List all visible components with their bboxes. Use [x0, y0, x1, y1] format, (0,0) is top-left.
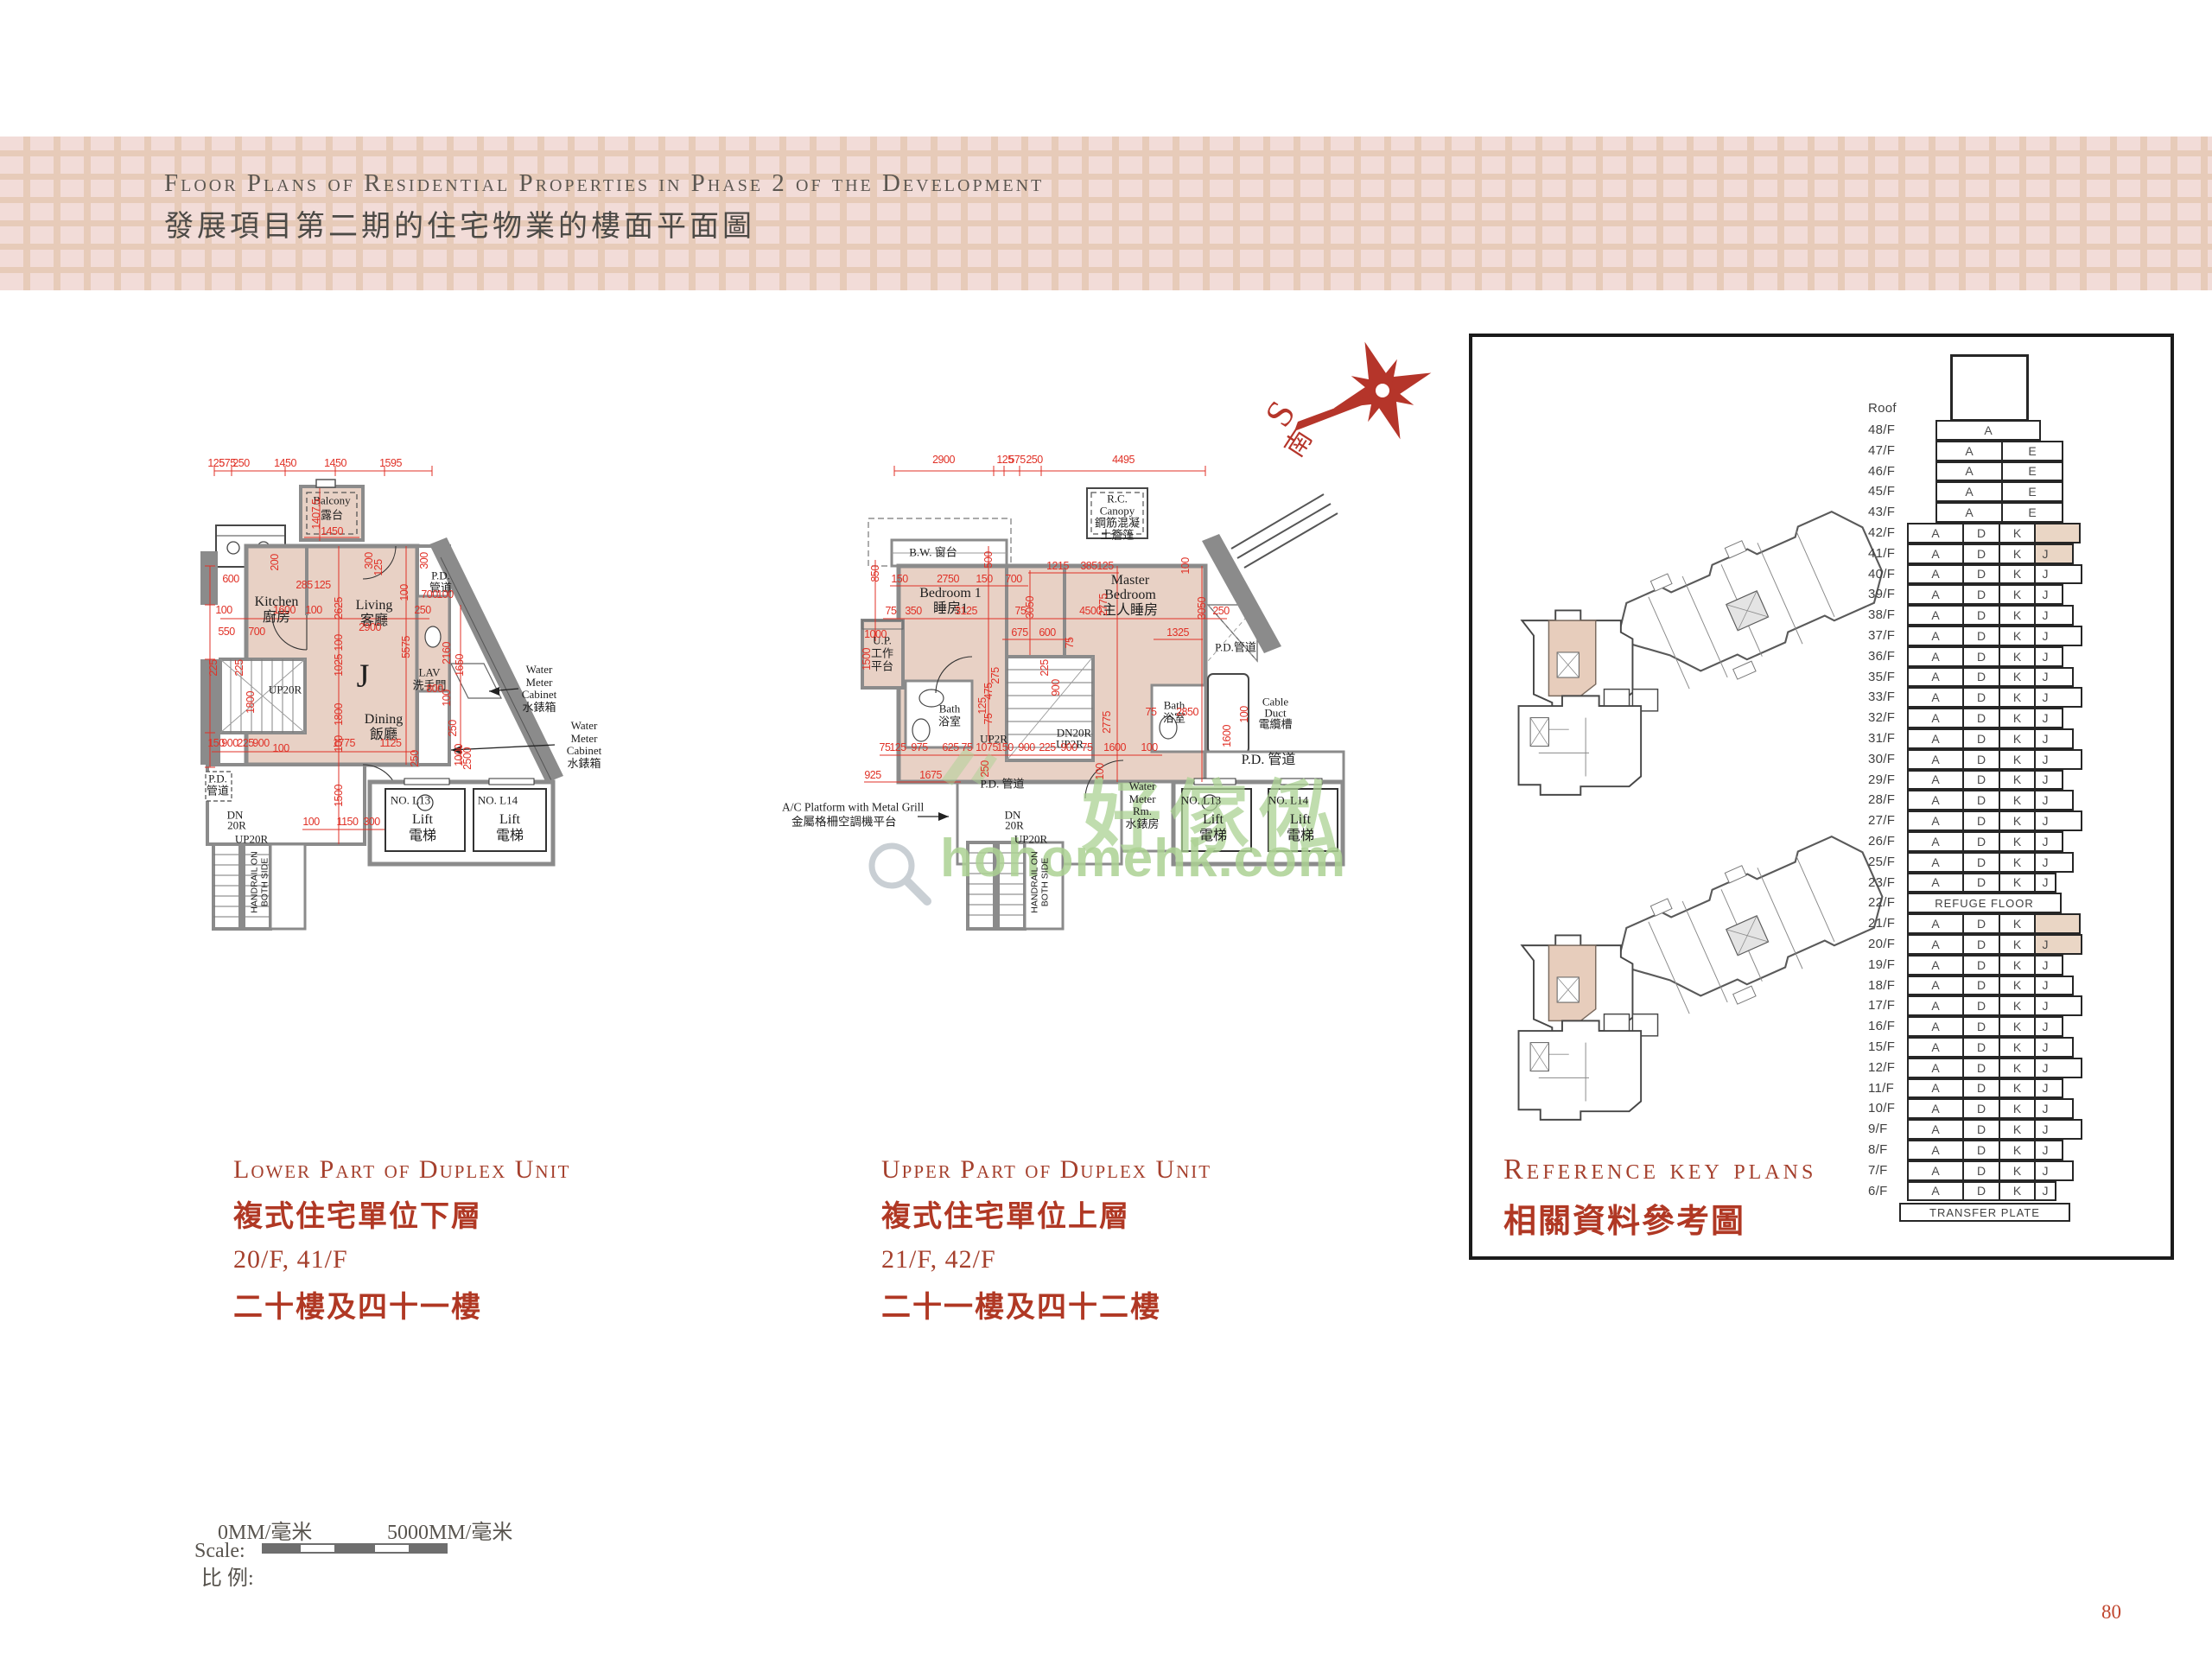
- floor-label: 40/F: [1868, 567, 1895, 582]
- floor-label: 12/F: [1868, 1060, 1895, 1075]
- dimension-label: 75: [962, 741, 973, 753]
- floor-label: 36/F: [1868, 649, 1895, 664]
- unit-cell: D: [1962, 543, 2000, 564]
- step-block: [2053, 667, 2074, 688]
- step-block: [2053, 626, 2082, 646]
- room-label: P.D. 管道: [981, 779, 1025, 791]
- dimension-label: 125: [976, 697, 988, 714]
- unit-cell: K: [1999, 873, 2036, 893]
- unit-cell: A: [1907, 1119, 1964, 1140]
- dimension-label: 1775: [333, 737, 355, 749]
- scale-segment: [373, 1543, 410, 1554]
- room-label: UP20R: [269, 684, 302, 697]
- unit-cell: A: [1907, 523, 1964, 543]
- room-label: 電梯: [1199, 829, 1227, 844]
- unit-cell: K: [1999, 1140, 2036, 1160]
- room-label: UP20R: [1014, 834, 1047, 847]
- dimension-label: 100: [1094, 763, 1106, 779]
- step-block: [2053, 584, 2063, 605]
- room-label: P.D. 管道: [1242, 753, 1296, 768]
- unit-cell: A: [1907, 646, 1964, 667]
- floor-label: 30/F: [1868, 752, 1895, 766]
- step-block: [2053, 995, 2082, 1016]
- dimension-label: 250: [979, 760, 991, 777]
- watermark-text: hohomehk.com: [940, 828, 1346, 889]
- dimension-label: 3050: [1024, 596, 1036, 619]
- unit-cell: D: [1962, 523, 2000, 543]
- floor-label: 27/F: [1868, 813, 1895, 828]
- floor-label: 16/F: [1868, 1019, 1895, 1033]
- step-block: [2053, 770, 2063, 791]
- dimension-label: 1325: [1166, 626, 1189, 639]
- floor-label: 10/F: [1868, 1101, 1895, 1116]
- dimension-label: 125: [1096, 560, 1113, 572]
- unit-cell: J: [2034, 873, 2056, 893]
- unit-cell: A: [1907, 1140, 1964, 1160]
- unit-cell: D: [1962, 1016, 2000, 1037]
- unit-cell: A: [1907, 831, 1964, 852]
- dimension-label: 75: [1082, 741, 1093, 753]
- unit-cell: D: [1962, 708, 2000, 728]
- dimension-label: 675: [1011, 626, 1027, 639]
- room-label: 電梯: [496, 829, 524, 844]
- dimension-label: 225: [207, 659, 219, 676]
- lower-plan-caption: Lower Part of Duplex Unit 複式住宅單位下層 20/F,…: [233, 1155, 769, 1325]
- room-label: Lift: [412, 812, 433, 828]
- unit-cell: E: [2001, 502, 2063, 523]
- step-block: [2053, 543, 2074, 564]
- dimension-label: 500: [982, 551, 995, 568]
- caption-en: Reference key plans: [1503, 1154, 1866, 1186]
- dimension-label: 900: [1050, 679, 1062, 696]
- unit-cell: A: [1907, 728, 1964, 749]
- annotation-label: HANDRAIL ON BOTH SIDE: [250, 851, 270, 912]
- unit-cell: A: [1907, 934, 1964, 955]
- dimension-label: 2775: [1101, 711, 1113, 734]
- floor-label: 11/F: [1868, 1081, 1894, 1096]
- dimension-label: 1595: [379, 457, 402, 469]
- dimension-label: 100: [1141, 741, 1157, 753]
- unit-cell: A: [1907, 1058, 1964, 1078]
- step-block: [2053, 1058, 2082, 1078]
- dimension-label: 75: [886, 605, 897, 617]
- floor-label: 21/F: [1868, 916, 1895, 931]
- dimension-label: 100: [1179, 557, 1192, 574]
- room-label: UP20R: [235, 834, 268, 847]
- step-block: [2053, 810, 2082, 831]
- dimension-label: 575: [1008, 454, 1025, 466]
- dimension-label: 900: [252, 737, 269, 749]
- step-block: [2053, 790, 2074, 810]
- floor-label: 28/F: [1868, 792, 1895, 807]
- unit-cell: K: [1999, 728, 2036, 749]
- unit-cell: K: [1999, 1160, 2036, 1181]
- room-label: 土簷篷: [1100, 530, 1134, 543]
- caption-floors-zh: 二十樓及四十一樓: [233, 1283, 769, 1325]
- unit-cell: D: [1962, 1181, 2000, 1202]
- dimension-label: 900: [1060, 741, 1077, 753]
- unit-cell: A: [1907, 584, 1964, 605]
- dimension-label: 100: [215, 604, 232, 616]
- dimension-label: 1600: [273, 604, 296, 616]
- step-block: [2053, 1119, 2082, 1140]
- unit-cell: D: [1962, 687, 2000, 708]
- dimension-label: 100: [333, 634, 345, 651]
- unit-cell: D: [1962, 995, 2000, 1016]
- dimension-label: 150: [891, 573, 907, 585]
- unit-cell: K: [1999, 1098, 2036, 1119]
- unit-cell: K: [1999, 626, 2036, 646]
- dimension-label: 1075: [976, 741, 998, 753]
- step-block: [2053, 831, 2063, 852]
- unit-cell: D: [1962, 1098, 2000, 1119]
- unit-cell: D: [1962, 873, 2000, 893]
- unit-cell: D: [1962, 564, 2000, 585]
- unit-cell: K: [1999, 667, 2036, 688]
- page-number: 80: [2101, 1601, 2121, 1624]
- scale-segment: [262, 1543, 299, 1554]
- room-label: 平台: [871, 661, 893, 674]
- dimension-label: 550: [218, 626, 234, 638]
- unit-cell: K: [1999, 810, 2036, 831]
- dimension-label: 925: [864, 769, 880, 781]
- dimension-label: 125: [314, 579, 330, 591]
- floor-label: 26/F: [1868, 834, 1895, 849]
- floor-label: 31/F: [1868, 731, 1895, 746]
- dimension-label: 850: [869, 565, 881, 582]
- dimension-label: 1025: [333, 654, 345, 677]
- floor-label: 43/F: [1868, 505, 1895, 519]
- caption-zh: 相關資料參考圖: [1503, 1194, 1866, 1242]
- unit-cell: D: [1962, 1160, 2000, 1181]
- floor-label: 35/F: [1868, 670, 1895, 684]
- room-label: Dining: [365, 712, 403, 728]
- room-label: B.W. 窗台: [909, 547, 957, 560]
- room-label: Bedroom 1: [919, 586, 982, 601]
- caption-en: Upper Part of Duplex Unit: [881, 1155, 1417, 1185]
- room-label: Lift: [1290, 812, 1311, 828]
- floor-label: 17/F: [1868, 998, 1895, 1013]
- unit-cell: A: [1907, 976, 1964, 996]
- unit-cell: K: [1999, 708, 2036, 728]
- unit-cell: D: [1962, 605, 2000, 626]
- floor-label: 46/F: [1868, 464, 1895, 479]
- floor-label: 7/F: [1868, 1163, 1888, 1178]
- dimension-label: 300: [363, 816, 379, 828]
- annotation-label: Water Meter Cabinet 水錶箱: [567, 720, 601, 770]
- annotation-label: A/C Platform with Metal Grill: [782, 800, 924, 813]
- unit-cell: K: [1999, 934, 2036, 955]
- unit-cell: D: [1962, 1140, 2000, 1160]
- unit-cell: A: [1935, 461, 2003, 482]
- dimension-label: 75: [1064, 638, 1076, 649]
- dimension-label: 900: [221, 737, 238, 749]
- dimension-label: 2850: [1176, 706, 1198, 718]
- step-block: [2053, 749, 2082, 770]
- dimension-label: 1675: [919, 769, 942, 781]
- room-label: 20R: [1005, 820, 1024, 833]
- unit-cell: A: [1907, 770, 1964, 791]
- unit-cell: K: [1999, 1119, 2036, 1140]
- dimension-label: 100: [302, 816, 319, 828]
- floor-label: 8/F: [1868, 1142, 1888, 1157]
- unit-cell: K: [1999, 687, 2036, 708]
- dimension-label: 125: [372, 559, 385, 575]
- dimension-label: 3125: [955, 605, 977, 617]
- dimension-label: 100: [398, 584, 410, 601]
- dimension-label: 2900: [932, 454, 955, 466]
- dimension-label: 125: [889, 741, 906, 753]
- dimension-label: 100: [441, 690, 453, 706]
- room-label: 浴室: [938, 716, 961, 729]
- room-label: Living: [356, 598, 393, 613]
- room-label: Bedroom: [1104, 588, 1156, 603]
- unit-cell: D: [1962, 770, 2000, 791]
- unit-cell: A: [1907, 1037, 1964, 1058]
- unit-cell: K: [1999, 1037, 2036, 1058]
- unit-cell: D: [1962, 667, 2000, 688]
- scale-end: 5000MM/毫米: [387, 1515, 512, 1545]
- unit-cell: D: [1962, 934, 2000, 955]
- dimension-label: 975: [911, 741, 927, 753]
- caption-zh: 複式住宅單位下層: [233, 1192, 769, 1235]
- room-label: 工作: [871, 648, 893, 661]
- dimension-label: 225: [233, 659, 245, 676]
- dimension-label: 1450: [274, 457, 296, 469]
- dimension-label: 2500: [461, 747, 474, 770]
- room-label: 電纜槽: [1258, 719, 1292, 732]
- unit-cell: K: [1999, 852, 2036, 873]
- unit-cell: A: [1935, 481, 2003, 502]
- dimension-label: 4495: [1112, 454, 1135, 466]
- unit-cell: A: [1907, 1078, 1964, 1099]
- dimension-label: 150: [976, 573, 992, 585]
- unit-cell: A: [1907, 955, 1964, 976]
- dimension-label: 250: [232, 457, 249, 469]
- floor-label: 6/F: [1868, 1184, 1888, 1198]
- unit-cell: A: [1907, 810, 1964, 831]
- dimension-label: 1500: [333, 785, 345, 807]
- floor-label: 38/F: [1868, 607, 1895, 622]
- dimension-label: 385: [1080, 560, 1096, 572]
- room-label: 露台: [321, 510, 343, 523]
- unit-cell: K: [1999, 1016, 2036, 1037]
- floor-label: Roof: [1868, 401, 1897, 416]
- step-block: [2053, 955, 2063, 976]
- dimension-label: 1450: [321, 525, 343, 537]
- brochure-page: Floor Plans of Residential Properties in…: [0, 0, 2212, 1659]
- refuge-floor-row: REFUGE FLOOR: [1907, 893, 2062, 913]
- dimension-label: 1215: [1046, 560, 1069, 572]
- dimension-label: 250: [447, 720, 459, 736]
- unit-cell: K: [1999, 831, 2036, 852]
- dimension-label: 700: [421, 588, 437, 601]
- dimension-label: 225: [237, 737, 253, 749]
- unit-cell: A: [1907, 1016, 1964, 1037]
- floor-label: 33/F: [1868, 690, 1895, 704]
- dimension-label: 900: [1018, 741, 1034, 753]
- unit-cell: A: [1907, 667, 1964, 688]
- dimension-label: 250: [1212, 605, 1229, 617]
- unit-cell: A: [1907, 708, 1964, 728]
- step-block: [2053, 1140, 2063, 1160]
- dimension-label: 285: [296, 579, 312, 591]
- unit-cell: K: [1999, 646, 2036, 667]
- step-block: [2053, 1078, 2063, 1099]
- caption-floors-zh: 二十一樓及四十二樓: [881, 1283, 1417, 1325]
- dimension-label: 1125: [380, 737, 402, 749]
- room-label: Lift: [499, 812, 520, 828]
- dimension-label: 200: [269, 554, 281, 570]
- step-block: [2053, 852, 2074, 873]
- unit-cell: D: [1962, 810, 2000, 831]
- unit-cell: K: [1999, 1058, 2036, 1078]
- roof-box: [1950, 354, 2029, 422]
- dimension-label: 100: [272, 742, 289, 754]
- room-label: J: [357, 658, 370, 696]
- unit-cell: A: [1907, 605, 1964, 626]
- step-block: [2053, 976, 2074, 996]
- dimension-label: 5575: [400, 636, 412, 658]
- floor-label: 42/F: [1868, 525, 1895, 540]
- unit-cell: A: [1907, 626, 1964, 646]
- floor-label: 22/F: [1868, 895, 1895, 910]
- unit-cell: K: [1999, 913, 2036, 934]
- room-label: NO. L13: [391, 795, 430, 808]
- unit-cell: A: [1907, 749, 1964, 770]
- floor-label: 48/F: [1868, 423, 1895, 437]
- unit-cell: K: [1999, 976, 2036, 996]
- dimension-label: 2900: [359, 621, 381, 633]
- unit-cell: A: [1907, 995, 1964, 1016]
- floor-label: 9/F: [1868, 1122, 1888, 1136]
- dimension-label: 1450: [324, 457, 346, 469]
- scale-segment: [336, 1543, 373, 1554]
- unit-cell: K: [1999, 995, 2036, 1016]
- unit-cell: [2034, 523, 2081, 543]
- unit-cell: A: [1907, 873, 1964, 893]
- dimension-label: 225: [1039, 659, 1051, 676]
- unit-cell: A: [1907, 852, 1964, 873]
- dimension-label: 250: [414, 604, 430, 616]
- dimension-label: 350: [905, 605, 921, 617]
- scale-label-en: Scale:: [194, 1540, 245, 1563]
- step-block: [2053, 687, 2082, 708]
- dimension-label: 225: [1039, 741, 1055, 753]
- unit-cell: E: [2001, 461, 2063, 482]
- unit-cell: A: [1935, 441, 2003, 461]
- floor-label: 20/F: [1868, 937, 1895, 951]
- unit-cell: K: [1999, 584, 2036, 605]
- room-label: 電梯: [1287, 829, 1314, 844]
- scale-segment: [410, 1543, 448, 1554]
- dimension-label: 150: [996, 741, 1013, 753]
- scale-segment: [299, 1543, 336, 1554]
- floor-label: 15/F: [1868, 1039, 1895, 1054]
- unit-cell: K: [1999, 1181, 2036, 1202]
- room-label: 電梯: [409, 829, 436, 844]
- floor-label: 25/F: [1868, 855, 1895, 869]
- dimension-label: 250: [1026, 454, 1042, 466]
- step-block: [2053, 708, 2063, 728]
- room-label: LAV: [418, 667, 440, 680]
- room-label: NO. L14: [1268, 795, 1308, 808]
- unit-cell: E: [2001, 441, 2063, 461]
- unit-cell: D: [1962, 790, 2000, 810]
- dimension-label: 2160: [441, 642, 453, 664]
- dimension-label: 600: [1039, 626, 1055, 639]
- caption-zh: 複式住宅單位上層: [881, 1192, 1417, 1235]
- dimension-label: 2775: [1097, 594, 1109, 616]
- unit-cell: A: [1907, 790, 1964, 810]
- unit-cell: D: [1962, 955, 2000, 976]
- dimension-label: 3050: [1196, 597, 1208, 620]
- dimension-label: 100: [305, 604, 321, 616]
- unit-cell: K: [1999, 543, 2036, 564]
- dimension-label: 100: [1238, 706, 1250, 722]
- step-block: [2053, 728, 2074, 749]
- room-label: P.D.管道: [1215, 642, 1256, 655]
- unit-cell: K: [1999, 523, 2036, 543]
- unit-cell: D: [1962, 831, 2000, 852]
- unit-cell: J: [2034, 1181, 2056, 1202]
- unit-cell: K: [1999, 790, 2036, 810]
- compass-north-indicator: S 南: [1256, 324, 1449, 462]
- caption-floors: 21/F, 42/F: [881, 1245, 1417, 1274]
- dimension-label: 625: [942, 741, 958, 753]
- unit-cell: D: [1962, 1119, 2000, 1140]
- step-block: [2053, 1160, 2074, 1181]
- unit-cell: D: [1962, 1078, 2000, 1099]
- unit-cell: [2034, 913, 2081, 934]
- step-block: [2053, 1037, 2074, 1058]
- unit-cell: D: [1962, 584, 2000, 605]
- reference-caption: Reference key plans 相關資料參考圖: [1503, 1154, 1866, 1242]
- unit-cell: D: [1962, 852, 2000, 873]
- unit-cell: A: [1907, 1160, 1964, 1181]
- unit-cell: A: [1907, 1098, 1964, 1119]
- scale-label-zh: 比 例:: [201, 1560, 254, 1591]
- floor-label: 39/F: [1868, 587, 1895, 601]
- dimension-label: 75: [1146, 706, 1157, 718]
- unit-cell: K: [1999, 605, 2036, 626]
- unit-cell: K: [1999, 564, 2036, 585]
- unit-cell: K: [1999, 770, 2036, 791]
- annotation-label: HANDRAIL ON BOTH SIDE: [1030, 851, 1051, 912]
- dimension-label: 1800: [245, 691, 257, 714]
- step-block: [2053, 934, 2082, 955]
- caption-en: Lower Part of Duplex Unit: [233, 1155, 769, 1185]
- unit-cell: K: [1999, 749, 2036, 770]
- floor-label: 45/F: [1868, 484, 1895, 499]
- step-block: [2053, 1016, 2063, 1037]
- floor-label: 41/F: [1868, 546, 1895, 561]
- annotation-label: 金屬格柵空調機平台: [791, 815, 897, 828]
- unit-cell: D: [1962, 626, 2000, 646]
- room-label: Master: [1111, 573, 1149, 588]
- dimension-label: 75: [982, 714, 995, 725]
- room-label: NO. L13: [1181, 795, 1221, 808]
- dimension-label: 300: [418, 552, 430, 569]
- step-block: [2053, 564, 2082, 585]
- floor-label: 23/F: [1868, 875, 1895, 890]
- dimension-label: 600: [222, 573, 238, 585]
- room-label: 管道: [207, 785, 229, 798]
- unit-cell: E: [2001, 481, 2063, 502]
- unit-cell: D: [1962, 913, 2000, 934]
- dimension-label: 1600: [1103, 741, 1126, 753]
- unit-cell: A: [1935, 502, 2003, 523]
